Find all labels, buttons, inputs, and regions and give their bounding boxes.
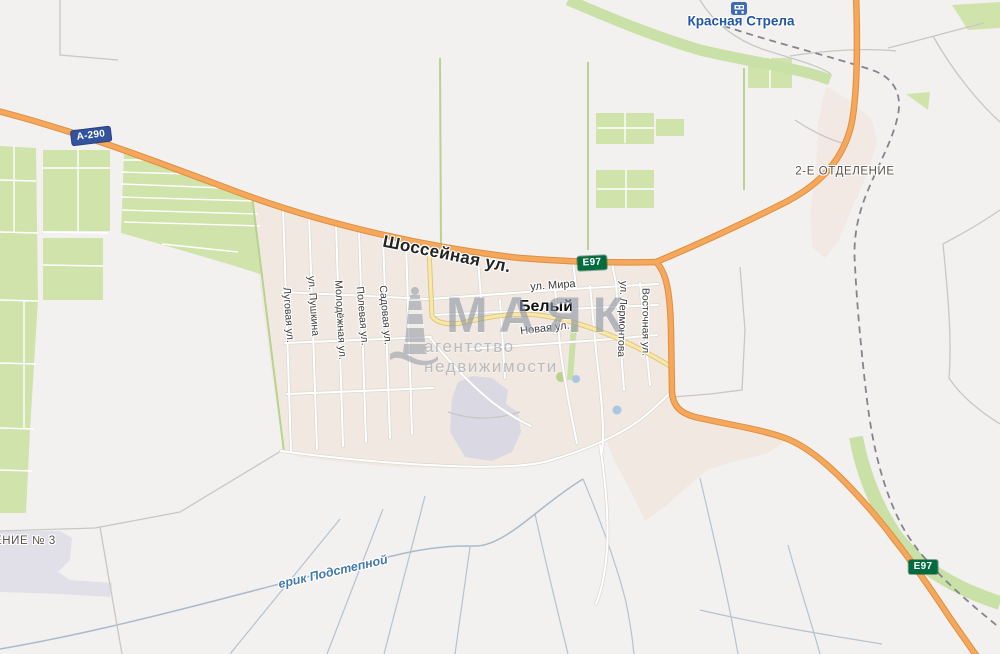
settlement-label-otdelenie2[interactable]: 2-Е ОТДЕЛЕНИЕ (795, 166, 894, 178)
street-label-lermontova: ул. Лермонтова (615, 281, 628, 358)
station-label-krasnaya-strela[interactable]: Красная Стрела (688, 14, 795, 28)
street-label-vostochnaya: Восточная ул. (640, 288, 651, 356)
town-label-bely[interactable]: Белый (519, 299, 573, 315)
map-tiles (0, 0, 1000, 654)
road-badge-e97-north: Е97 (577, 255, 606, 270)
map-canvas[interactable]: Шоссейная ул. ул. Мира Новая ул. Белый Л… (0, 0, 1000, 654)
road-badge-e97-south: Е97 (909, 560, 938, 574)
settlement-label-otdelenie3[interactable]: ЕНИЕ № 3 (0, 536, 56, 548)
